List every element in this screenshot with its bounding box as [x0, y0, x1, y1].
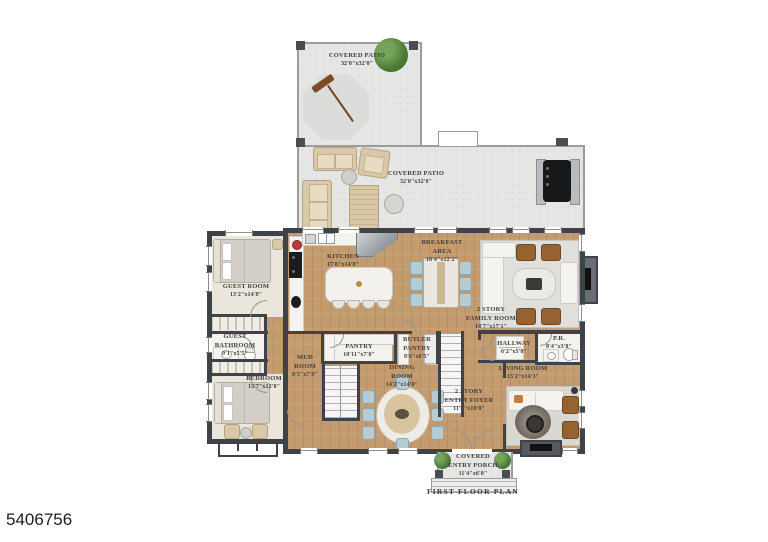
dining-table: [376, 386, 430, 444]
listing-id: 5406756: [6, 510, 72, 530]
living-room-label: LIVING ROOM 15'2"x14'3": [498, 365, 548, 382]
breakfast-chair: [410, 277, 423, 291]
kitchen-sink: [318, 233, 334, 243]
patio-post: [556, 138, 568, 146]
living-side-chair: [562, 396, 579, 414]
family-accent-chair: [541, 244, 561, 261]
breakfast-label: BREAKFAST AREA 18'4"x12'2": [413, 239, 471, 264]
dining-room-label: DINING ROOM 14'2"x14'0": [378, 364, 426, 389]
bedroom-chair: [252, 424, 268, 439]
bedroom-chair: [224, 424, 240, 439]
kitchen-cooktop: [305, 234, 316, 244]
family-accent-chair: [516, 308, 536, 325]
window: [398, 448, 418, 454]
mud-room-label: MUD ROOM 8'5"x7'9": [286, 354, 324, 379]
patio-post: [409, 41, 418, 50]
living-side-chair: [562, 421, 579, 439]
patio-post: [296, 138, 305, 147]
kitchen-island: [325, 267, 393, 303]
wall-segment: [264, 314, 267, 376]
window: [512, 227, 530, 233]
window: [414, 227, 434, 233]
kitchen-red-pot: [292, 240, 302, 250]
family-accent-chair: [541, 308, 561, 325]
wall-segment: [211, 359, 268, 362]
window: [302, 227, 324, 233]
window: [579, 390, 585, 407]
wall-segment: [283, 228, 288, 454]
patio-side-table: [341, 169, 357, 185]
wall-segment: [535, 330, 538, 364]
back-staircase: [325, 366, 357, 418]
family-sofa-left: [482, 254, 504, 314]
wall-segment: [283, 228, 585, 233]
bay-window: [218, 442, 278, 457]
window: [206, 382, 212, 400]
bedroom-side-table: [240, 427, 252, 439]
plan-caption: FIRST FLOOR PLAN: [409, 487, 537, 496]
breakfast-table: [423, 258, 459, 308]
grill: [536, 159, 578, 203]
window: [544, 227, 562, 233]
patio-round-table: [384, 194, 404, 214]
dining-chair: [431, 426, 444, 440]
butler-pantry-label: BUTLER PANTRY 8'6"x6'5": [398, 336, 436, 361]
patio-lower-label: COVERED PATIO 32'0"x32'0": [380, 170, 452, 187]
wall-segment: [394, 331, 397, 364]
window: [300, 448, 318, 454]
breakfast-chair: [410, 293, 423, 307]
window: [579, 304, 585, 322]
bedroom-label: BEDROOM 13'7"x12'8": [238, 375, 290, 392]
patio-upper-label: COVERED PATIO 32'0"x32'0": [322, 52, 392, 69]
wall-segment: [322, 418, 360, 421]
pantry-label: PANTRY 10'11"x7'0": [331, 343, 387, 360]
hallway-label: HALLWAY 6'2"x5'8": [494, 340, 534, 357]
family-coffee-table: [512, 268, 556, 300]
patio-post: [296, 41, 305, 50]
family-accent-chair: [516, 244, 536, 261]
powder-room-label: P.R. 8'4"x3'8": [543, 335, 575, 352]
window: [368, 448, 388, 454]
living-coffee-table: [526, 415, 544, 433]
window: [562, 448, 578, 454]
kitchen-left-counter: [289, 236, 304, 334]
kitchen-label: KITCHEN 17'8"x14'8": [322, 253, 364, 270]
family-room-label: 2 STORY FAMILY ROOM 14'7"x17'1": [466, 306, 516, 331]
kitchen-black-appliance: [291, 296, 301, 308]
guest-nightstand: [272, 239, 283, 250]
kitchen-range: [289, 252, 302, 278]
window: [225, 230, 253, 236]
patio-loveseat: [313, 147, 357, 171]
window: [206, 246, 212, 266]
wing-hall-floor: [264, 317, 285, 374]
window: [579, 412, 585, 429]
patio-step: [438, 131, 478, 147]
guest-closet: [211, 317, 263, 330]
wall-segment: [438, 331, 441, 417]
guest-room-label: GUEST ROOM 13'2"x14'8": [214, 283, 278, 300]
breakfast-chair: [459, 293, 472, 307]
wall-segment: [357, 363, 360, 421]
wall-segment: [503, 424, 506, 452]
window: [206, 404, 212, 422]
dining-chair: [362, 426, 375, 440]
window: [338, 227, 360, 233]
family-sofa-top: [482, 242, 516, 258]
dining-chair: [362, 408, 375, 422]
guest-bath-label: GUEST BATHROOM 9'1"x5'5": [212, 333, 258, 358]
window: [579, 234, 585, 252]
breakfast-chair: [459, 277, 472, 291]
guest-bed: [213, 239, 271, 283]
floor-plan-image: COVERED PATIO 32'0"x32'0" COVERED PATIO …: [0, 0, 768, 542]
floor-lamp: [571, 387, 578, 394]
entry-foyer-label: 2 STORY ENTRY FOYER 11'4"x19'8": [442, 388, 496, 413]
window: [437, 227, 457, 233]
living-fireplace: [520, 440, 562, 457]
window: [206, 272, 212, 292]
window: [489, 227, 507, 233]
wall-segment: [478, 360, 538, 363]
entry-porch-label: COVERED ENTRY PORCH 11'4"x6'0": [441, 453, 505, 478]
dining-chair: [362, 390, 375, 404]
family-sofa-right: [560, 262, 578, 304]
